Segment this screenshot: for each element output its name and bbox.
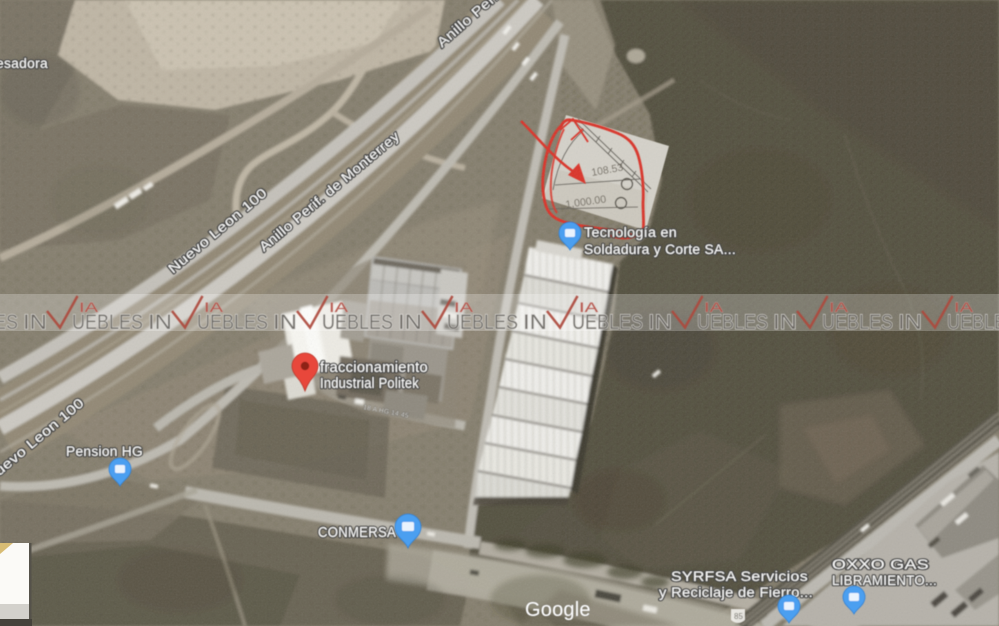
svg-text:Google: Google <box>525 599 591 621</box>
svg-text:LIBRAMIENTO...: LIBRAMIENTO... <box>832 573 937 588</box>
svg-text:Industrial Politek: Industrial Politek <box>320 376 419 392</box>
svg-text:85: 85 <box>734 612 743 621</box>
svg-text:CONMERSA: CONMERSA <box>318 525 396 541</box>
svg-text:Pension HG: Pension HG <box>66 443 143 459</box>
svg-text:esadora: esadora <box>0 56 48 71</box>
svg-text:Tecnología en: Tecnología en <box>584 225 677 240</box>
svg-text:fraccionamiento: fraccionamiento <box>320 360 428 376</box>
svg-text:Soldadura y Corte SA...: Soldadura y Corte SA... <box>584 242 736 257</box>
svg-text:OXXO GAS: OXXO GAS <box>832 557 929 572</box>
svg-text:SYRFSA Servicios: SYRFSA Servicios <box>671 569 808 584</box>
